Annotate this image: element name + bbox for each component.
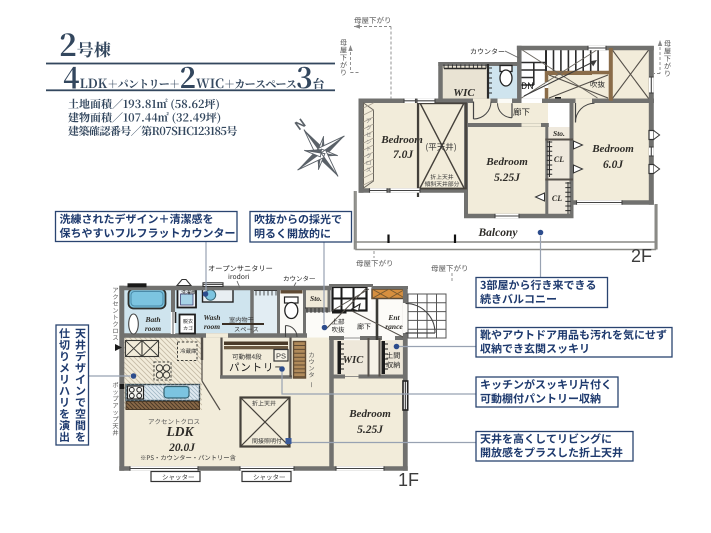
svg-text:Bedroom: Bedroom <box>485 156 528 168</box>
svg-text:1F: 1F <box>398 470 419 490</box>
svg-text:Bedroom: Bedroom <box>348 408 391 420</box>
svg-text:CL: CL <box>552 194 562 203</box>
svg-text:Sto.: Sto. <box>310 294 322 303</box>
svg-text:Ent: Ent <box>387 313 400 322</box>
svg-text:rance: rance <box>385 322 403 331</box>
svg-text:Balcony: Balcony <box>478 227 519 239</box>
svg-text:PS: PS <box>276 352 286 361</box>
svg-text:20.0J: 20.0J <box>168 442 196 454</box>
svg-text:room: room <box>204 322 220 331</box>
svg-text:room: room <box>145 324 161 333</box>
svg-text:N: N <box>292 115 308 133</box>
svg-text:CL: CL <box>554 155 564 164</box>
svg-text:2F: 2F <box>631 246 652 266</box>
svg-text:7.0J: 7.0J <box>393 149 414 161</box>
svg-text:5.25J: 5.25J <box>494 172 521 184</box>
svg-text:WIC: WIC <box>453 87 475 99</box>
svg-text:WIC: WIC <box>343 355 364 366</box>
svg-text:Bedroom: Bedroom <box>591 143 634 155</box>
svg-text:Bath: Bath <box>144 315 160 324</box>
svg-text:6.0J: 6.0J <box>603 159 624 171</box>
svg-text:Sto.: Sto. <box>553 129 565 138</box>
svg-text:5.25J: 5.25J <box>357 424 384 436</box>
svg-text:Wash: Wash <box>204 313 221 322</box>
svg-text:LDK: LDK <box>166 424 195 439</box>
svg-text:Bedroom: Bedroom <box>380 134 423 146</box>
